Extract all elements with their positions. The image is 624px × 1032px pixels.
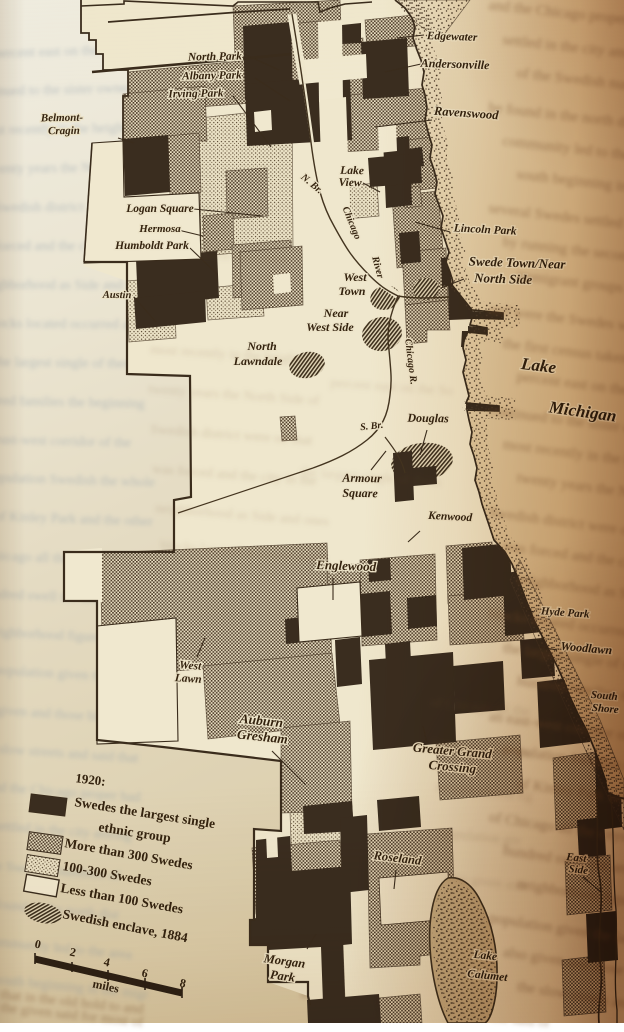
svg-text:1920:: 1920: xyxy=(75,770,107,789)
svg-text:Edgewater: Edgewater xyxy=(426,30,478,44)
svg-text:Hermosa: Hermosa xyxy=(138,223,181,235)
svg-text:2: 2 xyxy=(68,945,77,960)
svg-text:Near: Near xyxy=(323,306,349,320)
svg-text:View: View xyxy=(338,177,362,189)
svg-text:ethnic group: ethnic group xyxy=(98,819,172,845)
svg-text:Andersonville: Andersonville xyxy=(420,56,491,72)
svg-text:0: 0 xyxy=(33,937,42,952)
svg-text:Town: Town xyxy=(339,284,366,298)
svg-text:8: 8 xyxy=(178,976,187,991)
svg-text:Humboldt Park: Humboldt Park xyxy=(114,240,189,252)
svg-text:North Park: North Park xyxy=(187,51,242,64)
svg-text:West Side: West Side xyxy=(306,320,354,334)
svg-text:Irving Park: Irving Park xyxy=(167,88,224,101)
svg-text:Square: Square xyxy=(342,486,378,501)
svg-text:West: West xyxy=(179,659,203,673)
svg-text:6: 6 xyxy=(140,966,149,981)
svg-text:Austin: Austin xyxy=(102,290,132,302)
svg-text:Belmont-: Belmont- xyxy=(40,112,84,125)
svg-text:Douglas: Douglas xyxy=(406,411,449,426)
svg-text:Lake: Lake xyxy=(339,165,364,177)
svg-text:West: West xyxy=(343,270,367,284)
svg-text:Albany Park: Albany Park xyxy=(181,69,242,82)
svg-text:Logan Square: Logan Square xyxy=(125,203,193,215)
svg-text:Cragin: Cragin xyxy=(48,125,80,138)
svg-text:Lake: Lake xyxy=(472,949,498,964)
svg-text:4: 4 xyxy=(102,955,111,970)
svg-text:Lawn: Lawn xyxy=(173,672,202,686)
svg-text:Kenwood: Kenwood xyxy=(427,510,473,524)
